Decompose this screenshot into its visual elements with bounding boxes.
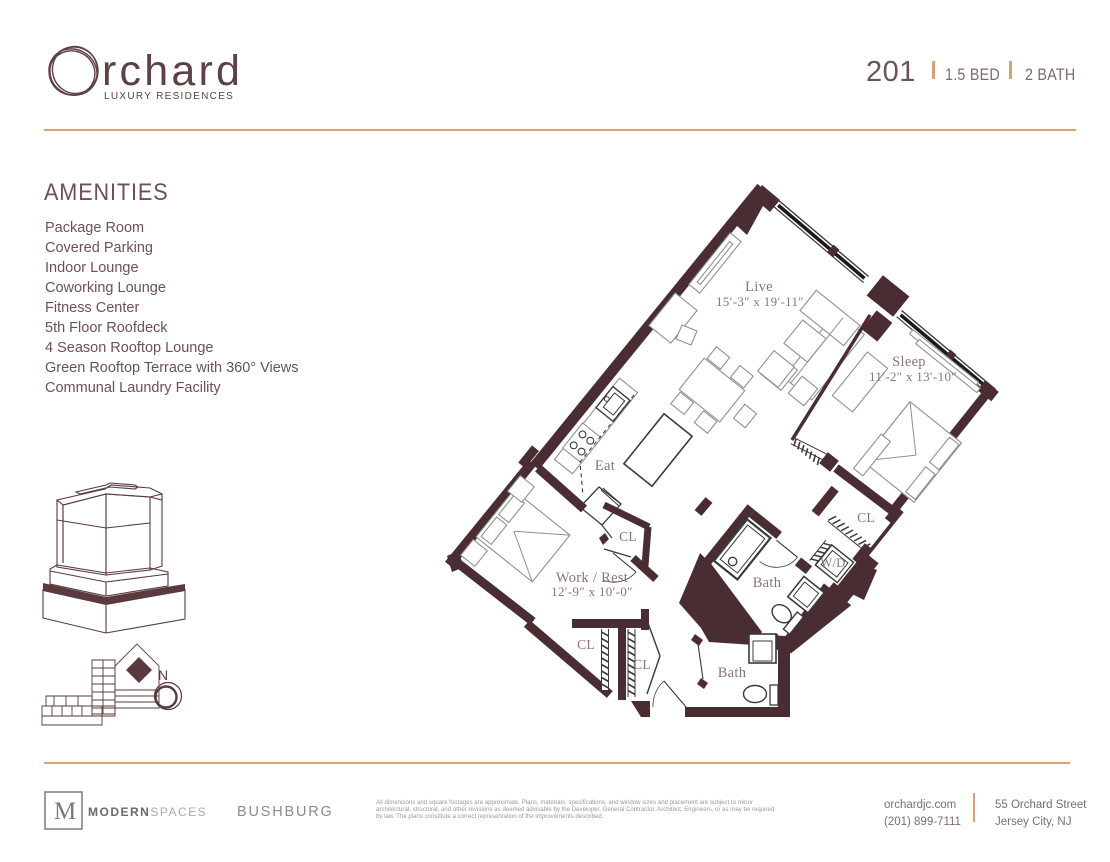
svg-text:CL: CL xyxy=(857,510,875,525)
svg-text:Bath: Bath xyxy=(718,665,747,681)
svg-text:Live: Live xyxy=(745,279,773,295)
svg-text:M: M xyxy=(54,798,76,825)
svg-text:CL: CL xyxy=(633,657,651,672)
svg-text:CL: CL xyxy=(619,529,637,544)
svg-text:Bath: Bath xyxy=(753,575,782,591)
svg-text:11′-2″ x 13′-10″: 11′-2″ x 13′-10″ xyxy=(869,369,957,384)
svg-text:Sleep: Sleep xyxy=(892,354,926,370)
svg-text:CL: CL xyxy=(577,637,595,652)
svg-text:12′-9″ x 10′-0″: 12′-9″ x 10′-0″ xyxy=(551,584,633,599)
svg-text:Eat: Eat xyxy=(595,458,615,474)
svg-text:15′-3″ x 19′-11″: 15′-3″ x 19′-11″ xyxy=(716,294,804,309)
svg-text:W/D: W/D xyxy=(820,556,845,570)
